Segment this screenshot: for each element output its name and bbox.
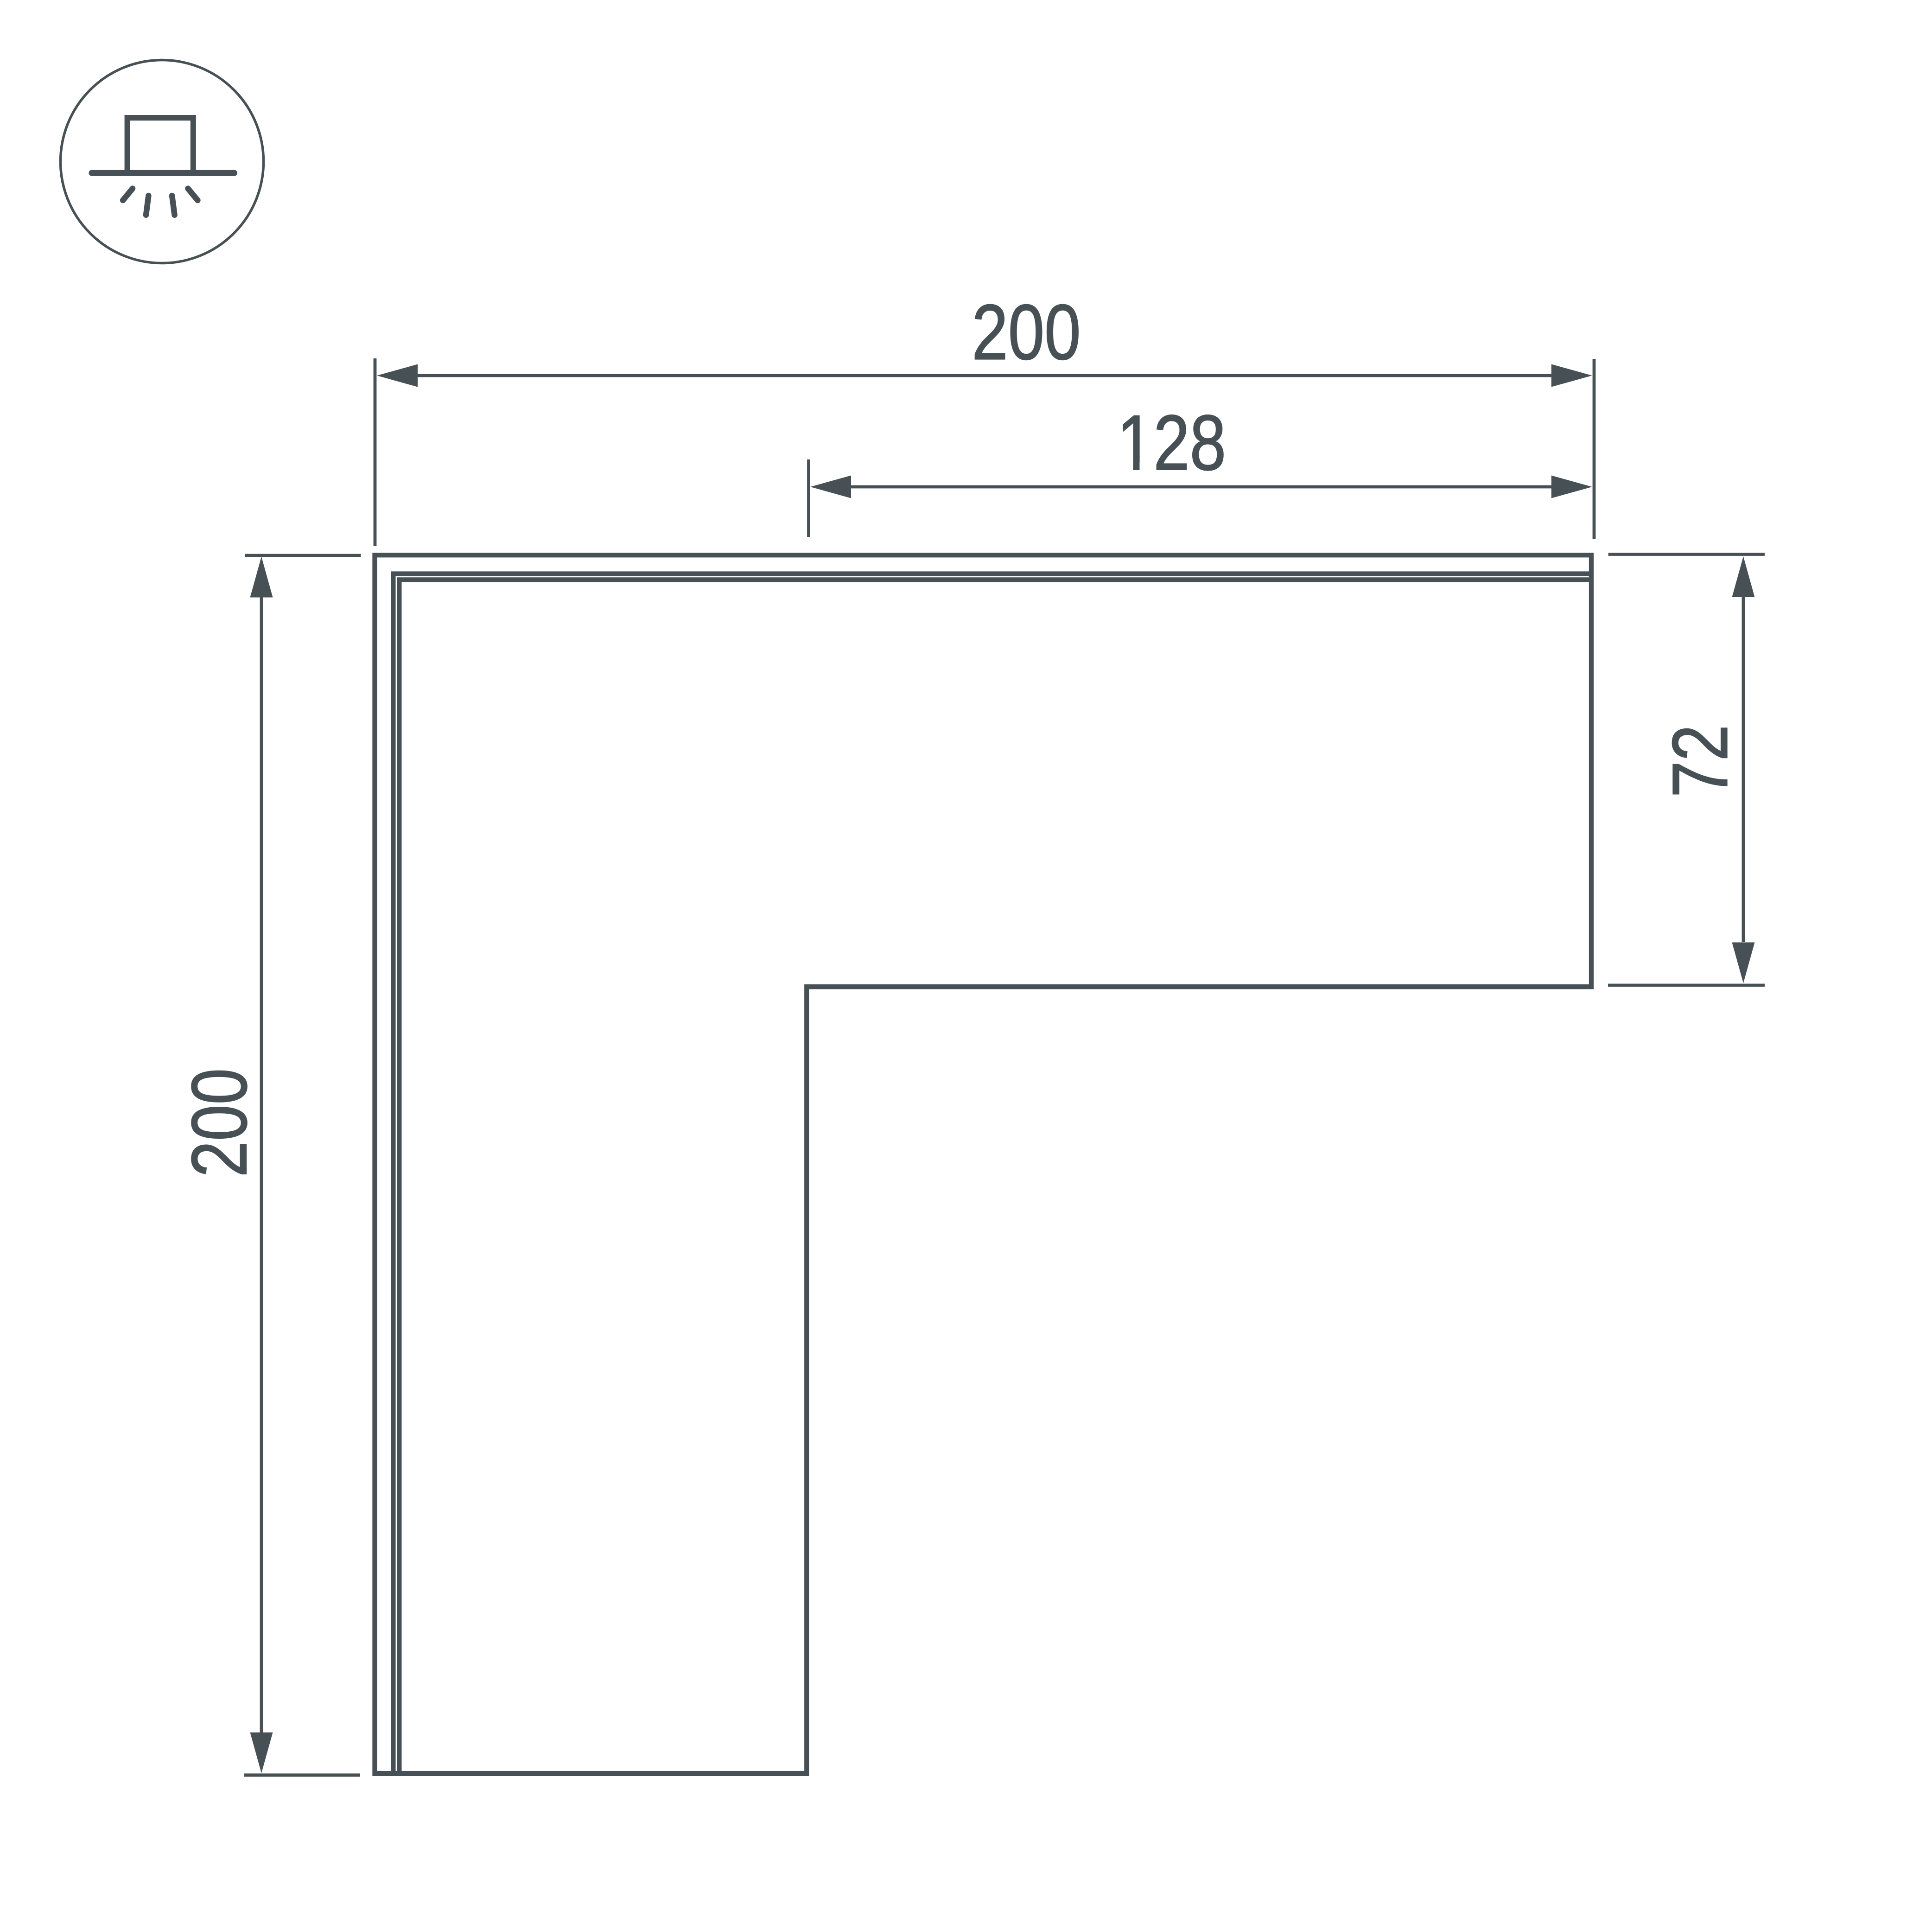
- svg-text:128: 128: [1117, 399, 1226, 486]
- svg-text:200: 200: [972, 288, 1080, 376]
- svg-text:200: 200: [175, 1068, 263, 1177]
- svg-text:72: 72: [1656, 725, 1744, 797]
